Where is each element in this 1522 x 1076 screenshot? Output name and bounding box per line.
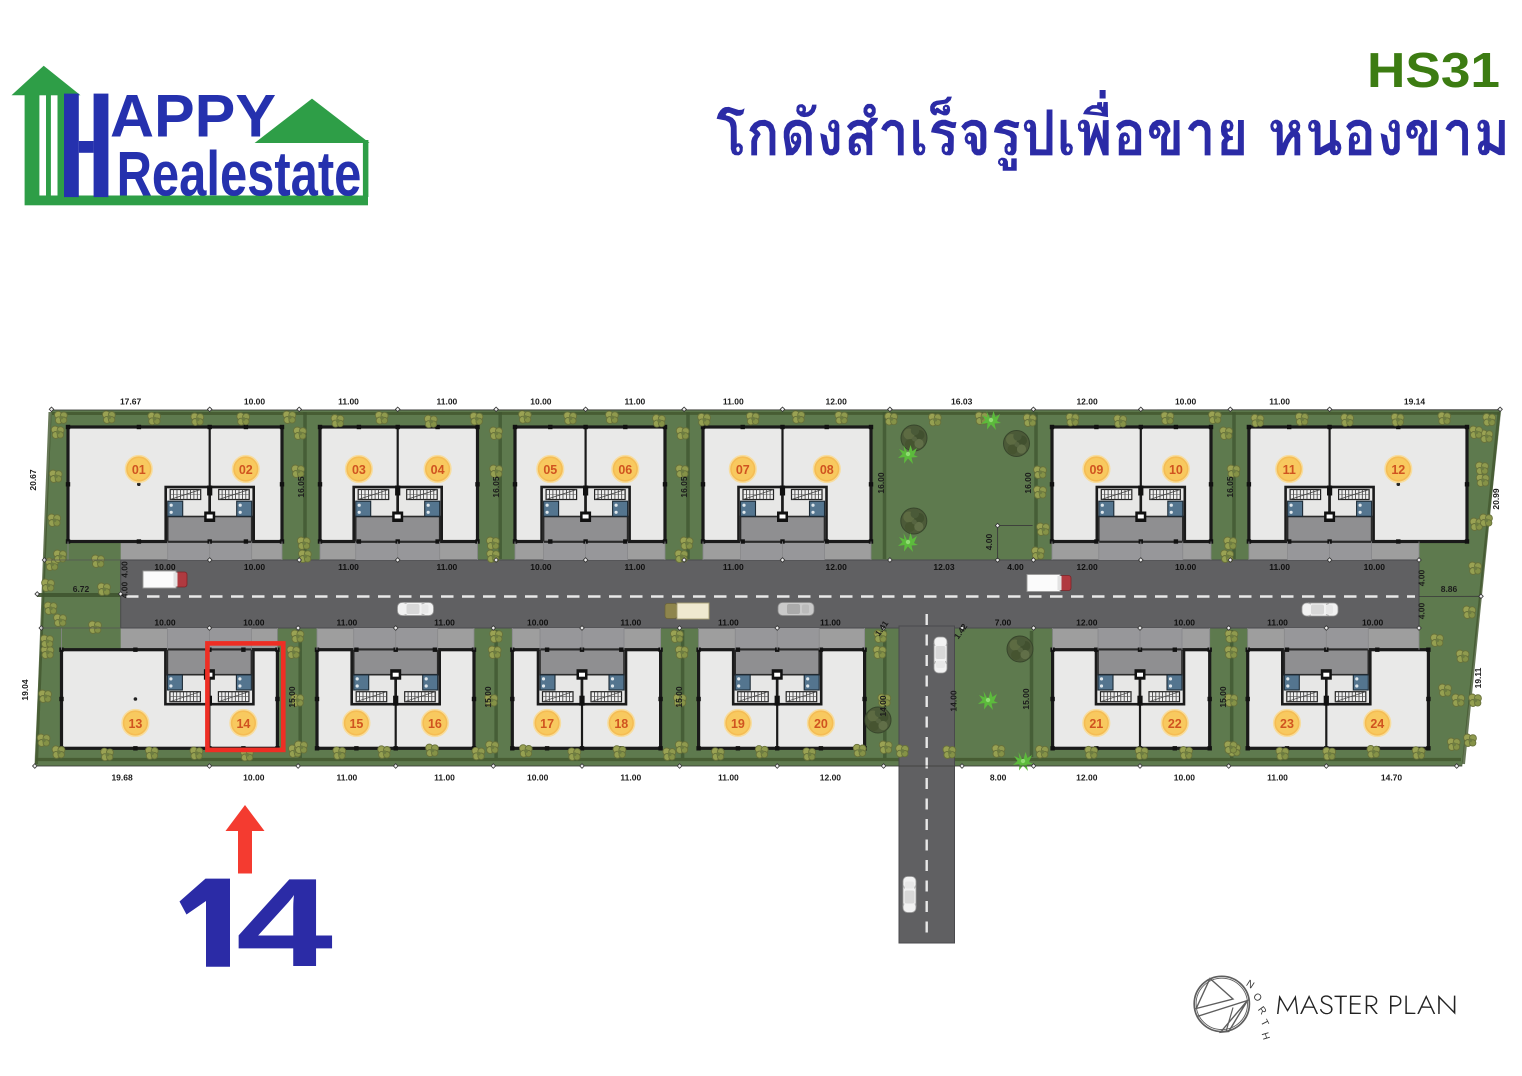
svg-text:11.00: 11.00 — [723, 562, 744, 572]
svg-text:12.03: 12.03 — [933, 562, 955, 572]
svg-text:11.00: 11.00 — [620, 618, 641, 628]
svg-text:7.00: 7.00 — [995, 618, 1012, 628]
svg-text:16.00: 16.00 — [1023, 472, 1033, 494]
svg-text:10: 10 — [1169, 463, 1183, 477]
svg-text:12.00: 12.00 — [1076, 397, 1098, 407]
svg-text:12: 12 — [1391, 463, 1405, 477]
svg-text:10.00: 10.00 — [154, 562, 176, 572]
svg-text:10.00: 10.00 — [1175, 397, 1197, 407]
svg-text:10.00: 10.00 — [530, 562, 552, 572]
svg-text:11.00: 11.00 — [336, 618, 357, 628]
svg-text:11.00: 11.00 — [1269, 397, 1290, 407]
svg-text:15.00: 15.00 — [674, 686, 684, 708]
svg-text:11.00: 11.00 — [434, 773, 455, 783]
svg-text:11.00: 11.00 — [1267, 773, 1288, 783]
svg-text:10.00: 10.00 — [154, 618, 176, 628]
svg-text:10.00: 10.00 — [530, 397, 552, 407]
svg-text:11.00: 11.00 — [336, 773, 357, 783]
svg-text:10.00: 10.00 — [244, 562, 266, 572]
svg-text:11.00: 11.00 — [1267, 618, 1288, 628]
svg-text:07: 07 — [736, 463, 750, 477]
svg-text:11.00: 11.00 — [338, 562, 359, 572]
svg-text:17.67: 17.67 — [120, 397, 142, 407]
svg-text:16.03: 16.03 — [951, 397, 973, 407]
svg-text:15.00: 15.00 — [1218, 686, 1228, 708]
svg-text:12.00: 12.00 — [1076, 618, 1098, 628]
svg-text:10.00: 10.00 — [1362, 618, 1384, 628]
svg-text:14.70: 14.70 — [1381, 773, 1403, 783]
svg-text:14.00: 14.00 — [949, 690, 959, 712]
svg-text:11.00: 11.00 — [820, 618, 841, 628]
svg-text:11.00: 11.00 — [624, 397, 645, 407]
svg-text:10.00: 10.00 — [527, 773, 549, 783]
svg-text:11.00: 11.00 — [434, 618, 455, 628]
svg-text:11.00: 11.00 — [1269, 562, 1290, 572]
svg-text:10.00: 10.00 — [527, 618, 549, 628]
svg-text:21: 21 — [1089, 717, 1103, 731]
svg-text:4.00: 4.00 — [120, 581, 130, 598]
svg-text:10.00: 10.00 — [243, 773, 265, 783]
svg-text:16.05: 16.05 — [296, 476, 306, 498]
svg-text:12.00: 12.00 — [826, 397, 848, 407]
svg-text:10.00: 10.00 — [243, 618, 265, 628]
svg-text:11.00: 11.00 — [620, 773, 641, 783]
svg-text:Realestate: Realestate — [117, 140, 362, 210]
svg-text:11.00: 11.00 — [624, 562, 645, 572]
svg-text:15.00: 15.00 — [287, 686, 297, 708]
svg-text:22: 22 — [1168, 717, 1182, 731]
svg-text:4.00: 4.00 — [984, 533, 994, 550]
svg-text:16.05: 16.05 — [1225, 476, 1235, 498]
svg-text:8.86: 8.86 — [1441, 584, 1458, 594]
svg-text:14: 14 — [236, 717, 250, 731]
svg-text:19.14: 19.14 — [1404, 397, 1426, 407]
svg-text:8.00: 8.00 — [990, 773, 1007, 783]
svg-text:6.72: 6.72 — [73, 584, 90, 594]
svg-text:16.00: 16.00 — [876, 472, 886, 494]
svg-text:24: 24 — [1370, 717, 1384, 731]
svg-text:11.00: 11.00 — [718, 618, 739, 628]
svg-text:08: 08 — [820, 463, 834, 477]
svg-text:04: 04 — [431, 463, 445, 477]
svg-text:16.05: 16.05 — [491, 476, 501, 498]
svg-text:11.00: 11.00 — [723, 397, 744, 407]
svg-text:10.00: 10.00 — [1174, 618, 1196, 628]
svg-text:19.11: 19.11 — [1473, 667, 1483, 688]
svg-text:03: 03 — [352, 463, 366, 477]
svg-text:12.00: 12.00 — [826, 562, 848, 572]
svg-text:4.00: 4.00 — [1417, 602, 1427, 619]
svg-text:23: 23 — [1280, 717, 1294, 731]
svg-text:19.04: 19.04 — [20, 679, 30, 701]
svg-text:13: 13 — [128, 717, 142, 731]
svg-text:12.00: 12.00 — [1076, 773, 1098, 783]
svg-text:15: 15 — [349, 717, 363, 731]
svg-text:20: 20 — [814, 717, 828, 731]
svg-text:14.00: 14.00 — [878, 695, 888, 717]
svg-text:10.00: 10.00 — [244, 397, 266, 407]
svg-text:06: 06 — [618, 463, 632, 477]
svg-text:11.00: 11.00 — [718, 773, 739, 783]
svg-text:01: 01 — [132, 463, 146, 477]
svg-text:19.68: 19.68 — [111, 773, 133, 783]
svg-text:05: 05 — [543, 463, 557, 477]
svg-text:19: 19 — [731, 717, 745, 731]
svg-text:11: 11 — [1283, 463, 1296, 477]
svg-text:16: 16 — [428, 717, 442, 731]
svg-text:11.00: 11.00 — [436, 397, 457, 407]
svg-text:4.00: 4.00 — [1007, 562, 1024, 572]
svg-text:10.00: 10.00 — [1174, 773, 1196, 783]
svg-text:10.00: 10.00 — [1175, 562, 1197, 572]
svg-text:11.00: 11.00 — [436, 562, 457, 572]
svg-text:16.05: 16.05 — [679, 476, 689, 498]
svg-text:4.00: 4.00 — [120, 561, 130, 578]
svg-text:11.00: 11.00 — [338, 397, 359, 407]
svg-text:4: 4 — [236, 852, 333, 993]
svg-text:12.00: 12.00 — [1076, 562, 1098, 572]
svg-text:10.00: 10.00 — [1364, 562, 1386, 572]
svg-text:12.00: 12.00 — [820, 773, 842, 783]
svg-text:09: 09 — [1089, 463, 1103, 477]
svg-text:20.99: 20.99 — [1491, 488, 1501, 510]
svg-text:20.67: 20.67 — [28, 469, 38, 491]
svg-text:17: 17 — [540, 717, 554, 731]
svg-text:02: 02 — [239, 463, 253, 477]
svg-text:4.00: 4.00 — [1417, 569, 1427, 586]
svg-text:HS31: HS31 — [1367, 44, 1500, 98]
svg-text:15.00: 15.00 — [483, 686, 493, 708]
svg-text:15.00: 15.00 — [1021, 688, 1031, 710]
svg-text:18: 18 — [614, 717, 628, 731]
